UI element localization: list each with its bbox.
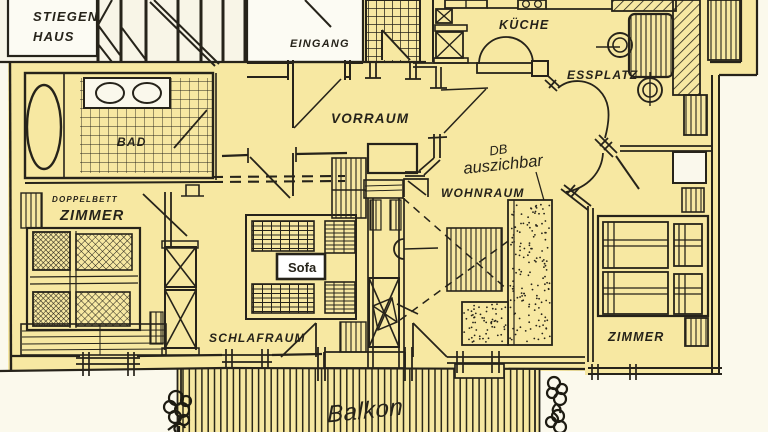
svg-text:KÜCHE: KÜCHE	[499, 17, 549, 32]
svg-text:ZIMMER: ZIMMER	[59, 208, 124, 224]
svg-text:WOHNRAUM: WOHNRAUM	[441, 186, 525, 200]
svg-text:VORRAUM: VORRAUM	[331, 111, 409, 126]
svg-text:HAUS: HAUS	[33, 29, 75, 44]
svg-text:ESSPLATZ: ESSPLATZ	[567, 68, 638, 82]
svg-text:BAD: BAD	[117, 135, 147, 149]
svg-text:Sofa: Sofa	[288, 260, 317, 275]
svg-text:SCHLAFRAUM: SCHLAFRAUM	[209, 331, 306, 345]
svg-text:STIEGEN: STIEGEN	[33, 9, 98, 24]
svg-text:ZIMMER: ZIMMER	[607, 330, 665, 344]
svg-text:DOPPELBETT: DOPPELBETT	[52, 195, 118, 204]
svg-text:EINGANG: EINGANG	[290, 38, 350, 50]
